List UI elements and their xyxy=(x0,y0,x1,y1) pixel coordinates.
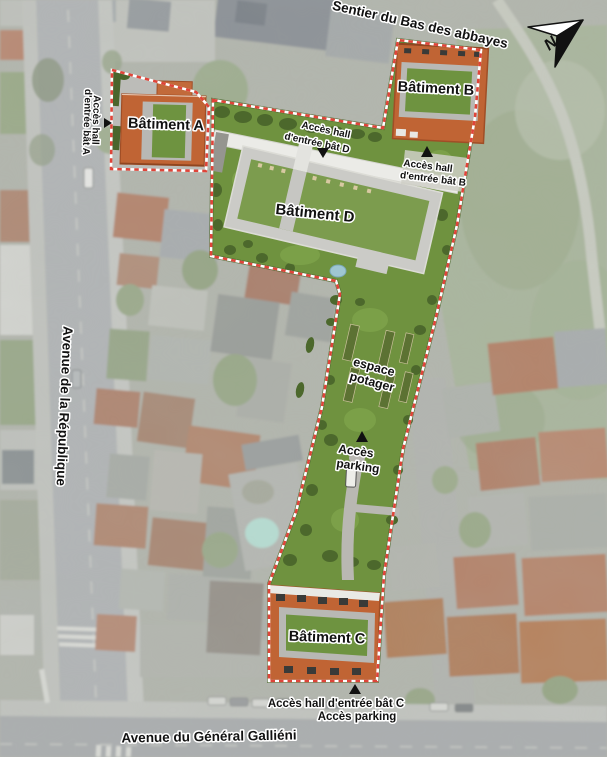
svg-text:Bâtiment C: Bâtiment C xyxy=(288,629,366,648)
svg-text:d'entrée bât A: d'entrée bât A xyxy=(80,89,93,155)
svg-text:Accès hall d'entrée bât C: Accès hall d'entrée bât C xyxy=(268,698,404,710)
svg-text:Accès parking: Accès parking xyxy=(318,711,397,723)
svg-text:Avenue du Général Galliéni: Avenue du Général Galliéni xyxy=(121,727,296,745)
svg-text:Bâtiment A: Bâtiment A xyxy=(128,116,205,135)
